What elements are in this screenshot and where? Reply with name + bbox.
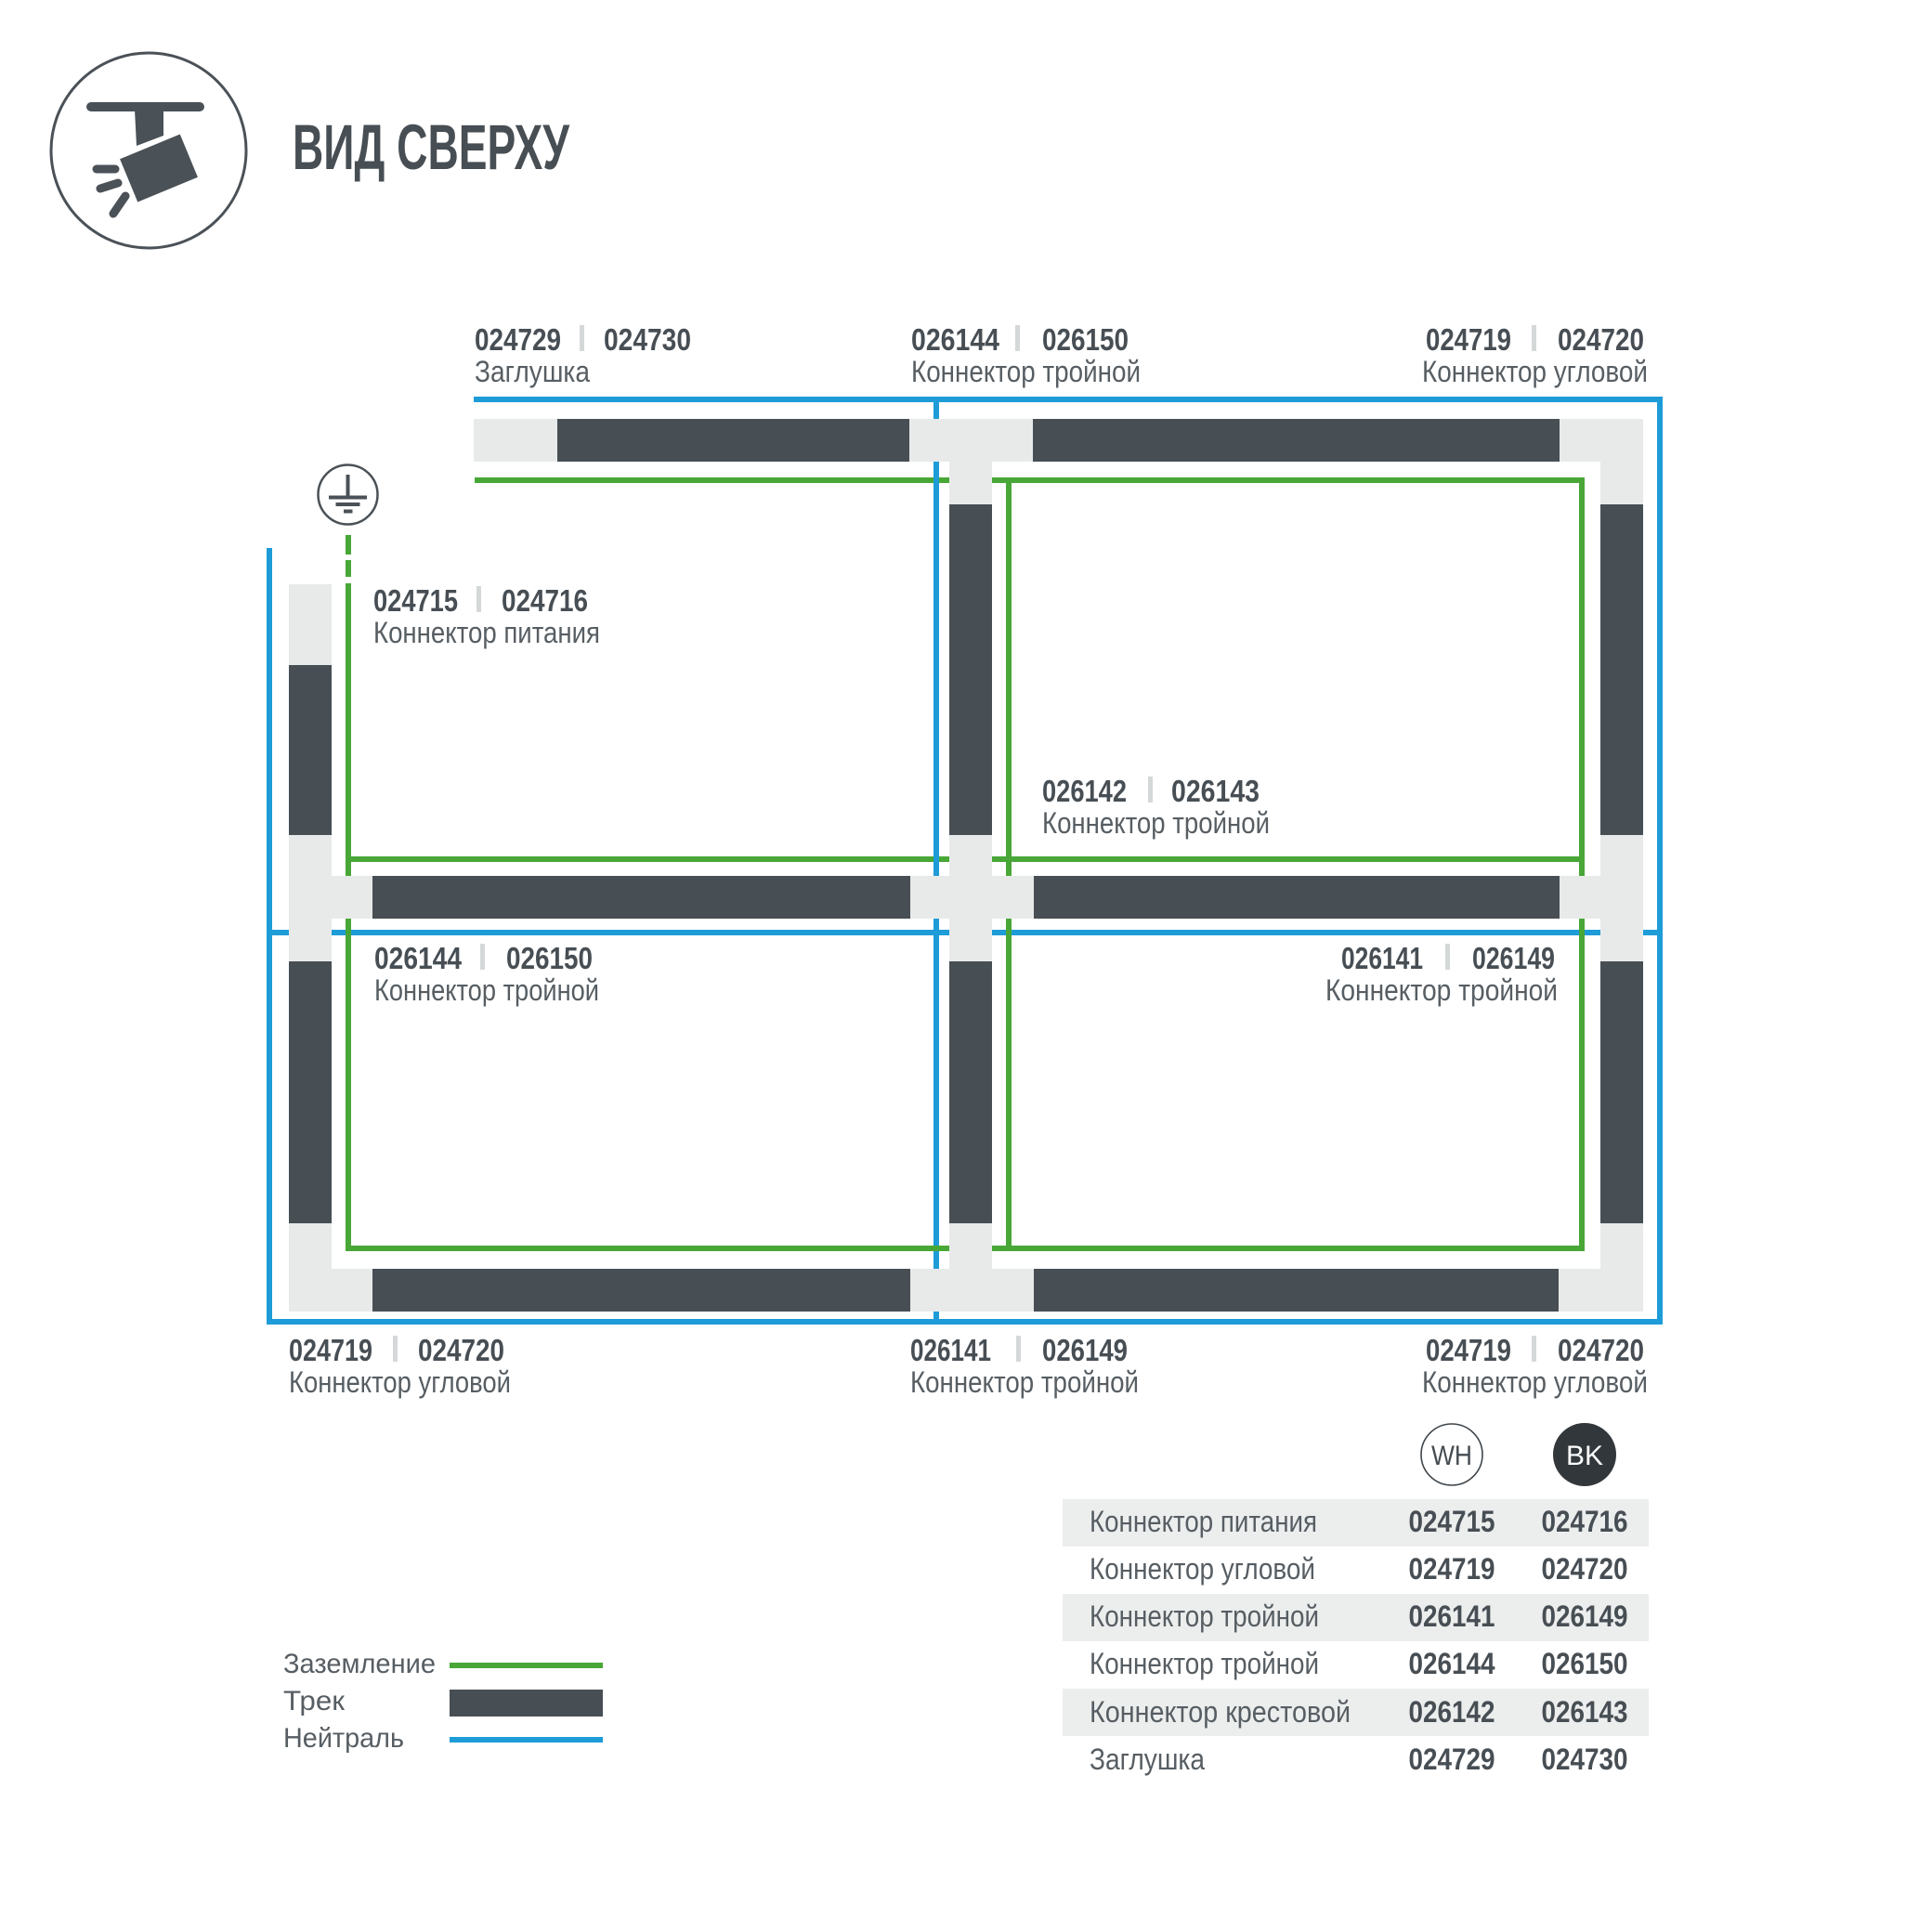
svg-text:024730: 024730	[604, 322, 691, 357]
svg-text:Нейтраль: Нейтраль	[283, 1723, 404, 1754]
svg-text:024719: 024719	[1426, 1333, 1511, 1367]
svg-text:024719: 024719	[1426, 322, 1511, 357]
svg-text:024715: 024715	[373, 583, 458, 618]
svg-text:026150: 026150	[1042, 322, 1129, 357]
svg-text:026144: 026144	[1409, 1647, 1495, 1680]
svg-text:024719: 024719	[289, 1333, 372, 1367]
svg-text:Коннектор угловой: Коннектор угловой	[1422, 355, 1648, 388]
svg-text:Заземление: Заземление	[283, 1649, 436, 1679]
svg-text:Коннектор питания: Коннектор питания	[1090, 1505, 1317, 1538]
svg-text:024720: 024720	[418, 1333, 504, 1367]
svg-text:024716: 024716	[1542, 1505, 1628, 1538]
svg-text:024716: 024716	[502, 583, 588, 618]
svg-text:026149: 026149	[1472, 941, 1555, 975]
svg-text:026143: 026143	[1542, 1695, 1628, 1729]
svg-text:Коннектор тройной: Коннектор тройной	[1090, 1599, 1319, 1633]
svg-text:026142: 026142	[1409, 1695, 1495, 1729]
svg-text:WH: WH	[1431, 1441, 1472, 1471]
svg-text:026141: 026141	[1409, 1599, 1495, 1633]
svg-text:024720: 024720	[1542, 1552, 1628, 1586]
svg-text:026149: 026149	[1542, 1599, 1628, 1633]
svg-text:024729: 024729	[475, 322, 561, 357]
svg-text:026144: 026144	[374, 941, 463, 975]
svg-text:Коннектор угловой: Коннектор угловой	[1090, 1552, 1315, 1586]
svg-text:024720: 024720	[1558, 322, 1644, 357]
svg-text:024719: 024719	[1409, 1552, 1495, 1586]
svg-text:BK: BK	[1566, 1441, 1603, 1471]
svg-text:026142: 026142	[1042, 774, 1127, 808]
svg-text:Коннектор питания: Коннектор питания	[373, 616, 600, 649]
svg-text:Коннектор тройной: Коннектор тройной	[1090, 1647, 1319, 1680]
svg-text:Коннектор угловой: Коннектор угловой	[1422, 1365, 1648, 1399]
svg-text:026141: 026141	[910, 1333, 991, 1367]
svg-text:Коннектор тройной: Коннектор тройной	[1042, 806, 1270, 840]
svg-text:Коннектор крестовой: Коннектор крестовой	[1090, 1695, 1351, 1729]
svg-text:Коннектор тройной: Коннектор тройной	[911, 355, 1141, 388]
svg-text:026144: 026144	[911, 322, 1000, 357]
svg-text:024729: 024729	[1409, 1743, 1495, 1776]
svg-text:Коннектор угловой: Коннектор угловой	[289, 1365, 511, 1399]
svg-text:026141: 026141	[1341, 941, 1423, 975]
svg-text:Трек: Трек	[283, 1686, 346, 1717]
svg-text:ВИД СВЕРХУ: ВИД СВЕРХУ	[293, 111, 570, 183]
svg-text:026150: 026150	[1542, 1647, 1628, 1680]
svg-text:Заглушка: Заглушка	[475, 355, 590, 388]
svg-text:Коннектор тройной: Коннектор тройной	[374, 973, 599, 1007]
svg-text:Коннектор тройной: Коннектор тройной	[1325, 973, 1558, 1007]
svg-text:026143: 026143	[1171, 774, 1260, 808]
svg-text:Заглушка: Заглушка	[1090, 1743, 1205, 1776]
svg-text:026150: 026150	[506, 941, 593, 975]
svg-text:Коннектор тройной: Коннектор тройной	[910, 1365, 1139, 1399]
svg-text:024730: 024730	[1542, 1743, 1628, 1776]
svg-text:024715: 024715	[1409, 1505, 1495, 1538]
svg-text:024720: 024720	[1558, 1333, 1644, 1367]
svg-text:026149: 026149	[1042, 1333, 1128, 1367]
